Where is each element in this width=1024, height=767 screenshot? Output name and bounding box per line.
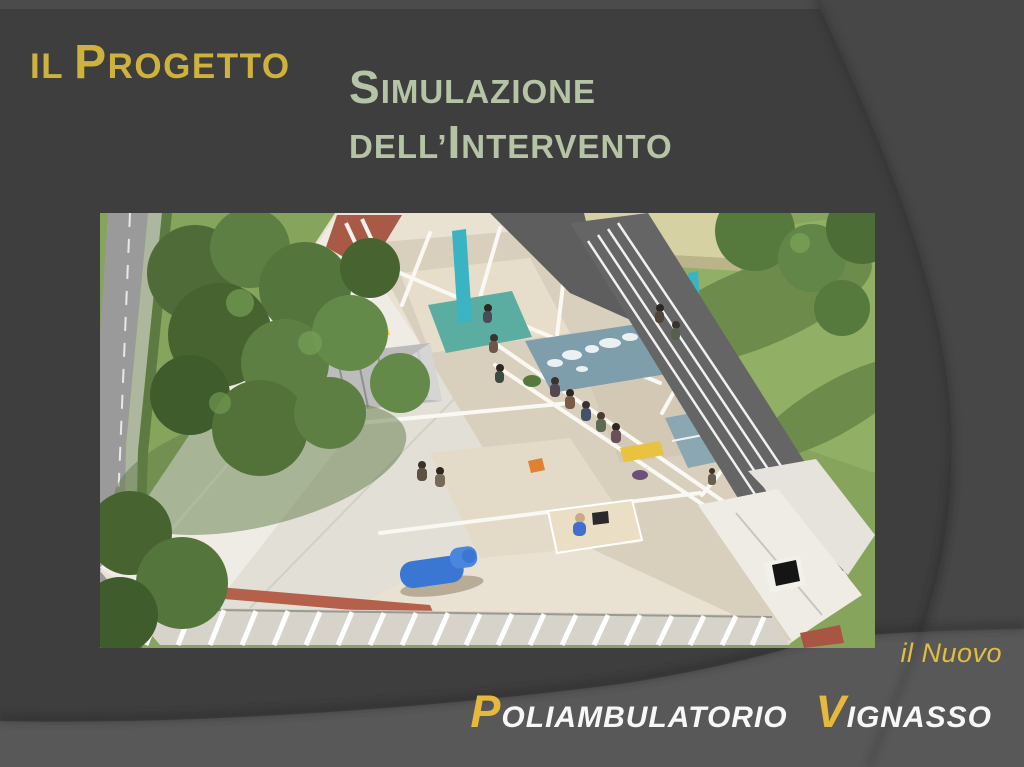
subtitle-line-2: DELL’INTERVENTO (349, 119, 673, 165)
title-word-il: IL (30, 47, 64, 86)
brand-initial-v: V (816, 686, 847, 737)
title-initial-p: P (74, 36, 108, 89)
project-render-image (100, 213, 875, 648)
subtitle-initial-i: I (448, 116, 462, 168)
footer-brand: POLIAMBULATORIOVIGNASSO (470, 686, 992, 738)
brand-word-vignasso: IGNASSO (847, 701, 992, 734)
subtitle-line-1: SIMULAZIONE (349, 64, 673, 110)
presentation-slide: ILPROGETTO SIMULAZIONE DELL’INTERVENTO (0, 0, 1024, 767)
subtitle-dell: DELL’ (349, 128, 448, 165)
title-word-rogetto: ROGETTO (108, 47, 291, 86)
slide-title: ILPROGETTO (30, 39, 291, 87)
brand-word-poliambulatorio: OLIAMBULATORIO (501, 701, 787, 734)
brand-initial-p: P (470, 686, 501, 737)
subtitle-initial-s: S (349, 61, 381, 113)
footer-tagline: il Nuovo (900, 638, 1002, 669)
render-scene (100, 213, 875, 648)
slide-subtitle: SIMULAZIONE DELL’INTERVENTO (349, 64, 673, 174)
subtitle-rest-1: IMULAZIONE (381, 73, 596, 110)
subtitle-rest-2: NTERVENTO (461, 128, 672, 165)
